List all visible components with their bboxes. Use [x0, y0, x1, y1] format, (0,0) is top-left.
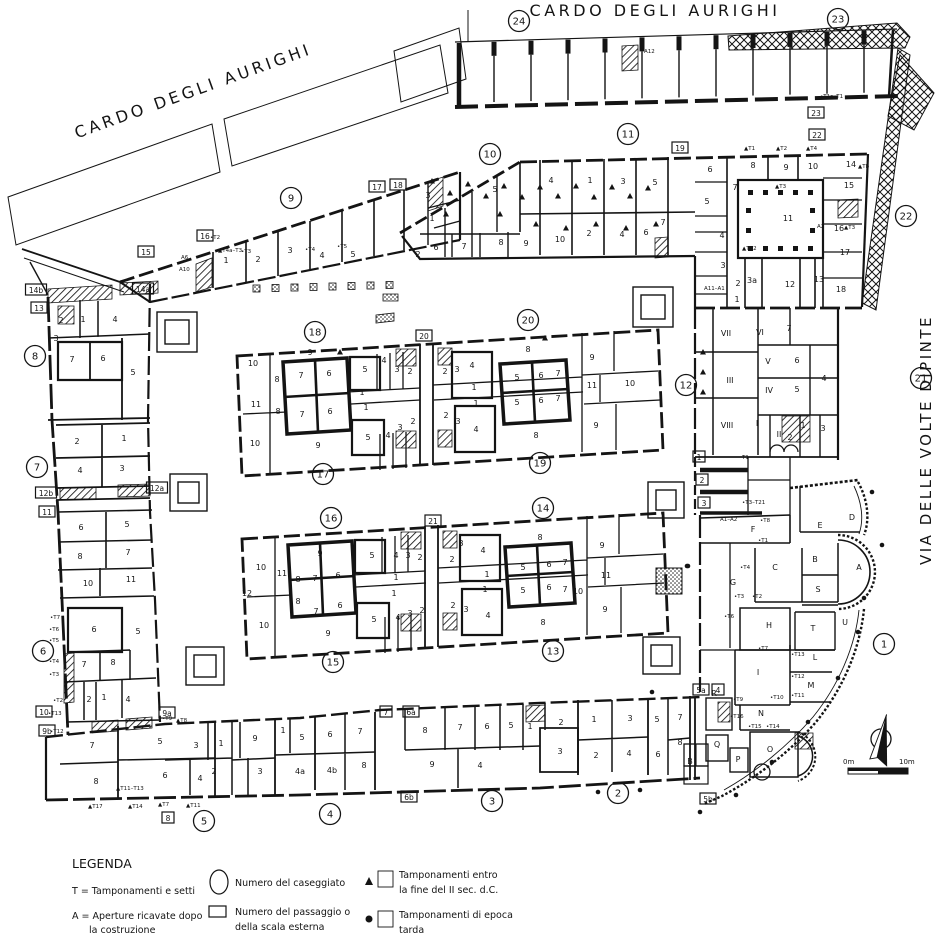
room-label: T — [810, 624, 816, 633]
room-label: 1 — [223, 256, 228, 265]
wall-annotation: A2 — [817, 224, 824, 230]
room-label: 10 — [248, 359, 258, 368]
room-label: 6 — [78, 523, 83, 532]
stair-hatch — [622, 45, 638, 71]
street-label: CARDO DEGLI AURIGHI — [530, 1, 781, 20]
plan-canvas: LEGENDA T = Tamponamenti e setti A = Ape… — [0, 0, 946, 940]
room-label: 2 — [86, 695, 91, 704]
room-label: 5 — [369, 551, 374, 560]
room-label: 8 — [750, 161, 755, 170]
room-label: 8 — [422, 726, 427, 735]
room-label: 11 — [601, 571, 611, 580]
room-label: 2 — [586, 229, 591, 238]
room-label: 3a — [747, 276, 757, 285]
room-label: 6 — [326, 369, 331, 378]
room-label: 12 — [242, 589, 252, 598]
room-label: 5 — [508, 721, 513, 730]
room-label: 10 — [625, 379, 635, 388]
room-label: 9 — [602, 605, 607, 614]
legend-title: LEGENDA — [72, 856, 132, 871]
room-label: 2 — [417, 553, 422, 562]
legend-dot-symbol — [366, 916, 373, 923]
wall-annotation: A10 — [179, 267, 190, 273]
legend-item-a: A = Aperture ricavate dopo — [72, 911, 203, 922]
room-label: 6 — [643, 228, 648, 237]
courtyard-pillar — [793, 246, 798, 251]
passage-number: 12a — [150, 484, 164, 493]
wall-annotation: •T13 — [48, 711, 62, 717]
room-label: 5 — [514, 398, 519, 407]
dot-marker — [698, 810, 703, 815]
room-label: 11 — [277, 569, 287, 578]
building-number: 22 — [900, 212, 913, 223]
room-label: 3 — [119, 464, 124, 473]
room-label: 4 — [477, 761, 482, 770]
room-label: I — [756, 419, 758, 428]
legend-triangle-label2: la fine del II sec. d.C. — [399, 885, 498, 896]
room-label: A — [856, 563, 862, 572]
room-label: 8 — [677, 738, 682, 747]
wall-annotation: •T3 — [734, 594, 745, 600]
room-label: 9 — [523, 239, 528, 248]
wall-annotation: •T7 — [758, 646, 769, 652]
passage-number: 6a — [406, 708, 415, 717]
passage-number: 20 — [419, 332, 429, 341]
room-label: 5 — [704, 197, 709, 206]
building-number: 3 — [489, 797, 495, 808]
building-number: 12 — [680, 381, 693, 392]
room-label: 8 — [525, 345, 530, 354]
room-label: 9 — [325, 629, 330, 638]
room-label: 7 — [660, 218, 665, 227]
passage-number: 17 — [372, 183, 382, 192]
room-label: 3 — [193, 741, 198, 750]
legend-dot-label1: Tamponamenti di epoca — [398, 910, 513, 921]
room-label: 4 — [125, 695, 130, 704]
room-label: 9 — [783, 163, 788, 172]
room-label: 9 — [315, 441, 320, 450]
building-number: 14 — [537, 504, 550, 515]
room-label: VIII — [721, 421, 734, 430]
room-label: 8 — [77, 552, 82, 561]
wall-annotation: •T4 — [740, 565, 751, 571]
room-label: 3 — [820, 424, 825, 433]
room-label: 6 — [327, 407, 332, 416]
room-label: 4 — [626, 749, 631, 758]
room-label: 5 — [362, 365, 367, 374]
room-label: 4 — [473, 425, 478, 434]
courtyard-pillar — [763, 246, 768, 251]
garden-feature — [376, 313, 394, 323]
room-label: 6 — [335, 571, 340, 580]
room-label: 4 — [719, 231, 724, 240]
passage-number: 18 — [393, 181, 403, 190]
courtyard-pillar — [793, 190, 798, 195]
room-label: 6 — [707, 165, 712, 174]
room-label: 7 — [457, 723, 462, 732]
room-label: 5 — [365, 433, 370, 442]
building-number: 17 — [317, 470, 330, 481]
room-label: 7 — [562, 558, 567, 567]
room-label: 3 — [455, 417, 460, 426]
room-label: 1 — [734, 295, 739, 304]
room-label: 5 — [652, 178, 657, 187]
room-label: 4 — [619, 230, 624, 239]
scale-bar — [848, 768, 908, 774]
room-label: 5 — [371, 615, 376, 624]
room-label: 5 — [520, 563, 525, 572]
room-label: 2 — [558, 718, 563, 727]
room-label: 4 — [469, 361, 474, 370]
room-label: 2 — [58, 316, 63, 325]
room-label: 8 — [533, 431, 538, 440]
room-label: 13 — [814, 275, 824, 284]
wall-annotation: ▲T12 — [742, 246, 757, 252]
room-label: 1 — [484, 570, 489, 579]
room-label: VI — [756, 328, 764, 337]
building-number: 16 — [325, 514, 338, 525]
room-label: 7 — [69, 355, 74, 364]
wall-annotation: ▲T3 — [844, 225, 856, 231]
room-label: 4 — [393, 551, 398, 560]
room-label: 7 — [677, 713, 682, 722]
room-label: 4 — [381, 356, 386, 365]
garden-pillar — [329, 283, 336, 290]
passage-number: 7 — [384, 708, 389, 717]
room-label: R — [711, 689, 717, 698]
stair-hatch — [782, 416, 810, 442]
room-label: I — [757, 668, 759, 677]
room-label: 4a — [295, 767, 305, 776]
room-label: 1 — [121, 434, 126, 443]
room-label: 3 — [425, 191, 430, 200]
dot-marker — [734, 793, 739, 798]
room-label: 9 — [593, 421, 598, 430]
room-label: 4 — [319, 251, 324, 260]
room-label: 3 — [458, 539, 463, 548]
room-label: 8 — [498, 238, 503, 247]
room-label: G — [730, 578, 736, 587]
room-label: 2 — [407, 367, 412, 376]
room-label: 8 — [295, 575, 300, 584]
room-label: 1 — [101, 693, 106, 702]
room-label: 7 — [357, 727, 362, 736]
room-label: 4 — [548, 176, 553, 185]
room-label: 6 — [538, 396, 543, 405]
room-label: 7 — [732, 183, 737, 192]
room-label: 10 — [250, 439, 260, 448]
room-label: 6 — [546, 583, 551, 592]
room-label: 7 — [298, 371, 303, 380]
building-number: 5 — [201, 817, 207, 828]
room-label: B — [812, 555, 818, 564]
archaeological-floor-plan: LEGENDA T = Tamponamenti e setti A = Ape… — [0, 0, 946, 940]
courtyard-pillar — [748, 190, 753, 195]
garden-pillar — [367, 282, 374, 289]
building-number: 23 — [832, 15, 845, 26]
wall-annotation: ▲T1 — [744, 146, 755, 152]
building-number: 13 — [547, 647, 560, 658]
passage-number: 14b — [29, 286, 44, 295]
passage-number: 5b — [703, 795, 713, 804]
room-label: 4 — [385, 431, 390, 440]
room-label: 7 — [81, 660, 86, 669]
room-label: S — [815, 585, 820, 594]
room-label: 7 — [312, 574, 317, 583]
room-label: 10 — [555, 235, 565, 244]
room-label: V — [765, 357, 771, 366]
room-label: 2 — [593, 751, 598, 760]
room-label: 8 — [361, 761, 366, 770]
room-label: Q — [714, 740, 720, 749]
passage-number: 11 — [42, 508, 52, 517]
room-label: 11 — [251, 400, 261, 409]
passage-number: 23 — [811, 109, 821, 118]
wall-annotation: •T6 — [724, 614, 735, 620]
dot-marker — [880, 543, 885, 548]
room-label: 6 — [484, 722, 489, 731]
room-label: C — [772, 563, 778, 572]
room-label: 2 — [735, 279, 740, 288]
dot-marker — [856, 630, 861, 635]
dot-marker — [685, 564, 690, 569]
room-label: 4 — [77, 466, 82, 475]
wall-annotation: •T7 — [50, 615, 61, 621]
room-label: 1 — [482, 585, 487, 594]
garden-pillar — [291, 284, 298, 291]
garden-pillar — [310, 284, 317, 291]
garden-pillar — [348, 283, 355, 290]
passage-number: 6b — [404, 793, 414, 802]
room-label: P — [736, 755, 741, 764]
garden-pillar — [272, 285, 279, 292]
room-label: 5 — [124, 520, 129, 529]
wall-annotation: ▲T2 — [776, 146, 787, 152]
wall-annotation: •T3 — [241, 249, 252, 255]
room-label: 6 — [794, 356, 799, 365]
room-label: 10 — [573, 587, 583, 596]
wall-annotation: •T3 — [49, 672, 60, 678]
legend-rect-label2: della scala esterna — [235, 922, 324, 933]
room-label: 5 — [654, 715, 659, 724]
wall-annotation: •T1a–T1 — [820, 94, 843, 100]
room-label: 9 — [317, 549, 322, 558]
garden-pillar — [253, 285, 260, 292]
room-label: 5 — [514, 373, 519, 382]
building-number: 7 — [34, 463, 40, 474]
room-label: 6 — [655, 750, 660, 759]
room-label: 10 — [83, 579, 93, 588]
courtyard-pillar — [810, 228, 815, 233]
room-label: 4 — [821, 374, 826, 383]
room-label: 4 — [112, 315, 117, 324]
stair-hatch — [718, 702, 730, 722]
wall-annotation: ▲T4 — [806, 146, 818, 152]
room-label: 2 — [449, 555, 454, 564]
wall-annotation: ▲T11 — [186, 803, 201, 809]
room-label: 2 — [787, 433, 792, 442]
building-number: 9 — [288, 194, 294, 205]
wall-annotation: A12 — [644, 49, 655, 55]
room-label: 7 — [461, 242, 466, 251]
wall-annotation: A6 — [181, 255, 189, 261]
room-label: 6 — [327, 730, 332, 739]
building-number: 4 — [327, 810, 333, 821]
room-label: 1 — [429, 214, 434, 223]
dot-marker — [870, 490, 875, 495]
room-label: 6 — [337, 601, 342, 610]
passage-number: 5a — [696, 686, 705, 695]
room-label: 7 — [125, 548, 130, 557]
legend-dot-label2: tarda — [399, 925, 424, 936]
room-label: D — [849, 513, 855, 522]
room-label: 3 — [405, 551, 410, 560]
building-number: 10 — [484, 150, 497, 161]
room-label: 10 — [256, 563, 266, 572]
legend-triangle-label1: Tamponamenti entro — [398, 870, 498, 881]
wall-annotation: •T10 — [770, 695, 784, 701]
wall-annotation: •T11 — [791, 693, 805, 699]
room-label: 3 — [627, 714, 632, 723]
room-label: O — [767, 745, 773, 754]
room-label: 4 — [485, 611, 490, 620]
room-label: 5 — [794, 385, 799, 394]
room-label: 1 — [527, 722, 532, 731]
room-label: 5 — [492, 185, 497, 194]
room-label: 2 — [442, 367, 447, 376]
room-label: 10 — [259, 621, 269, 630]
passage-number: 16 — [200, 232, 210, 241]
wall-annotation: •T8 — [760, 518, 771, 524]
wall-annotation: •T3–T21 — [742, 500, 765, 506]
room-label: 14 — [846, 160, 856, 169]
building-number: 21 — [915, 374, 928, 385]
passage-number: 14a — [136, 285, 150, 294]
room-label: 2 — [450, 601, 455, 610]
passage-number: 22 — [812, 131, 822, 140]
dot-marker — [638, 788, 643, 793]
garden-pillar — [386, 282, 393, 289]
courtyard-pillar — [808, 190, 813, 195]
wall-annotation: •T5 — [49, 638, 60, 644]
room-label: 18 — [836, 285, 846, 294]
wall-annotation: •T6 — [49, 627, 60, 633]
legend-rect-label1: Numero del passaggio o — [235, 907, 350, 918]
room-label: 3 — [557, 747, 562, 756]
wall-annotation: •T2 — [210, 235, 220, 241]
wall-annotation: •T13 — [791, 652, 805, 658]
wall-annotation: T1 — [741, 455, 749, 461]
room-label: 8 — [93, 777, 98, 786]
room-label: 9 — [429, 760, 434, 769]
room-label: 6 — [538, 371, 543, 380]
passage-number: 21 — [428, 517, 438, 526]
room-label: II — [777, 430, 782, 439]
room-label: 12 — [785, 280, 795, 289]
building-number: 24 — [513, 17, 526, 28]
building-number: 11 — [622, 130, 635, 141]
room-label: 5 — [130, 368, 135, 377]
stair-hatch — [838, 199, 858, 218]
room-label: 3 — [53, 334, 58, 343]
room-label: 3 — [620, 177, 625, 186]
room-label: 3 — [257, 767, 262, 776]
room-label: 3 — [407, 609, 412, 618]
room-label: 8 — [110, 658, 115, 667]
room-label: 1 — [800, 421, 805, 430]
late-blocking-square — [656, 568, 682, 594]
passage-number: 13 — [34, 304, 44, 313]
room-label: 11 — [126, 575, 136, 584]
garden-feature — [383, 294, 398, 301]
courtyard-pillar — [763, 190, 768, 195]
wall-annotation: ▲T3 — [775, 184, 787, 190]
room-label: 3 — [720, 261, 725, 270]
room-label: 4 — [197, 774, 202, 783]
room-label: 1 — [80, 315, 85, 324]
legend-circle-label: Numero del caseggiato — [235, 878, 345, 889]
room-label: 3 — [394, 365, 399, 374]
room-label: 16 — [834, 224, 844, 233]
building-number: 18 — [309, 328, 322, 339]
room-label: E — [817, 521, 822, 530]
room-label: 17 — [840, 248, 850, 257]
room-label: 3 — [287, 246, 292, 255]
dot-marker — [770, 760, 775, 765]
room-label: 9 — [599, 541, 604, 550]
room-label: 1 — [280, 726, 285, 735]
passage-number: 1 — [697, 453, 702, 462]
wall-annotation: •T2 — [53, 698, 63, 704]
dot-marker — [650, 690, 655, 695]
room-label: 4 — [480, 546, 485, 555]
room-label: 5 — [157, 737, 162, 746]
stair-hatch — [655, 237, 668, 258]
courtyard-pillar — [778, 190, 783, 195]
room-label: 7 — [555, 369, 560, 378]
room-label: 5 — [135, 627, 140, 636]
wall-annotation: •T15 — [748, 724, 762, 730]
room-label: 4 — [395, 613, 400, 622]
room-label: H — [766, 621, 772, 630]
building-number: 1 — [881, 640, 887, 651]
room-label: B — [687, 757, 693, 766]
courtyard-pillar — [746, 228, 751, 233]
room-label: 1 — [363, 403, 368, 412]
room-label: 11 — [587, 381, 597, 390]
room-label: 9 — [589, 353, 594, 362]
passage-number: 8 — [166, 814, 171, 823]
courtyard-pillar — [778, 246, 783, 251]
wall-annotation: •T9 — [733, 697, 744, 703]
room-label: III — [726, 376, 733, 385]
wall-annotation: ▲T17 — [88, 804, 103, 810]
courtyard-pillar — [808, 246, 813, 251]
dot-marker — [836, 676, 841, 681]
room-label: 11 — [783, 214, 793, 223]
wall-annotation: •T1 — [758, 538, 768, 544]
room-label: 1 — [218, 739, 223, 748]
room-label: 7 — [299, 410, 304, 419]
room-label: 5 — [520, 586, 525, 595]
room-label: 7 — [786, 324, 791, 333]
room-label: L — [813, 653, 818, 662]
wall-annotation: ▲T7 — [158, 802, 170, 808]
wall-annotation: •T4 — [305, 247, 316, 253]
building-number: 15 — [327, 658, 340, 669]
room-label: 6 — [433, 243, 438, 252]
wall-annotation: ▲Tb — [858, 164, 870, 170]
